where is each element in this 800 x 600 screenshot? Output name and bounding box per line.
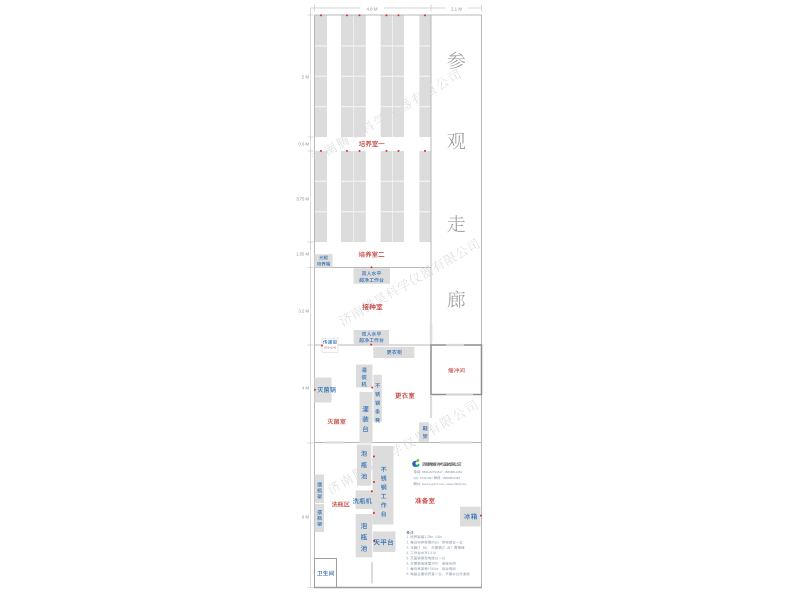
- svg-text:(3: (3: [417, 546, 420, 550]
- svg-text:,: ,: [442, 572, 443, 576]
- svg-text:3.: 3.: [407, 546, 410, 550]
- svg-text:3.2 M: 3.2 M: [299, 309, 310, 314]
- svg-text:1.: 1.: [407, 535, 410, 539]
- svg-text:0.6 M: 0.6 M: [299, 142, 310, 147]
- svg-text:+750va: +750va: [428, 567, 439, 571]
- svg-text:1.05 M: 1.05 M: [296, 252, 309, 257]
- svg-text:3.75 M: 3.75 M: [296, 197, 309, 202]
- svg-text:5.: 5.: [407, 556, 410, 560]
- svg-text:4.: 4.: [407, 551, 410, 555]
- svg-text:2.: 2.: [407, 540, 410, 544]
- svg-text:: www.sypx17.com, www.chh6j.co: : www.sypx17.com, www.chh6j.com: [420, 482, 467, 486]
- svg-text::: :: [414, 531, 415, 535]
- svg-text:),: ),: [426, 546, 428, 550]
- svg-text:5 M: 5 M: [302, 75, 309, 80]
- svg-text:): ): [451, 546, 452, 550]
- svg-text:4 M: 4 M: [302, 386, 309, 391]
- svg-text:2.1 M: 2.1 M: [451, 6, 462, 11]
- svg-text:80cm: 80cm: [431, 540, 439, 544]
- svg-text:: 15866811352: : 15866811352: [441, 476, 461, 480]
- svg-text:QQ: 67417467: QQ: 67417467: [414, 476, 434, 480]
- svg-text:(2: (2: [442, 546, 445, 550]
- svg-text:1.5 M: 1.5 M: [428, 551, 436, 555]
- svg-text:8.: 8.: [407, 572, 410, 576]
- svg-text:4.8 M: 4.8 M: [367, 6, 378, 11]
- svg-text:(0.6x0.4): (0.6x0.4): [324, 346, 336, 350]
- svg-text:7.: 7.: [407, 567, 410, 571]
- svg-text:380v: 380v: [431, 562, 438, 566]
- svg-text:6 M: 6 M: [302, 515, 309, 520]
- svg-text:1.25m, 4.5m: 1.25m, 4.5m: [424, 535, 442, 539]
- svg-text:: 0531-82794617, 15866811352: : 0531-82794617, 15866811352: [420, 470, 462, 474]
- svg-text:6.: 6.: [407, 562, 410, 566]
